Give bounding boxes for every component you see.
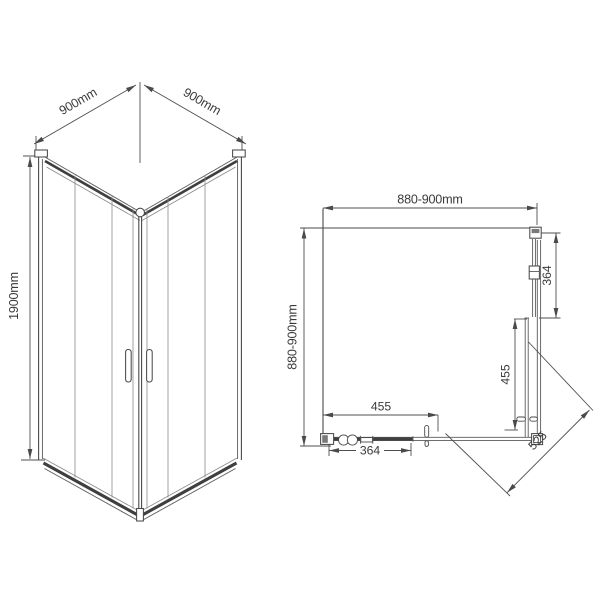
bottom-door-handle: [425, 426, 429, 438]
plan-dim-right-door: 455: [499, 319, 528, 430]
dim-label-depth: 880-900mm: [286, 304, 300, 369]
dim-label-right-fixed: 364: [540, 265, 554, 286]
dim-label-diagonal: 525: [526, 428, 550, 452]
iso-dim-width-right: 900mm: [144, 85, 246, 152]
right-wall-profile-cap: [233, 150, 246, 157]
iso-view: 900mm 900mm 1900mm: [7, 82, 246, 521]
plan-dim-bottom-door: 455: [323, 400, 438, 432]
dim-label-bottom-door: 455: [371, 400, 392, 414]
iso-structure: [35, 150, 245, 521]
plan-dim-right-fixed: 364: [539, 233, 561, 318]
right-panel-connector: [529, 266, 539, 279]
roller-wheel: [347, 435, 357, 445]
bottom-rail-left: [43, 458, 139, 521]
left-wall-profile-cap: [35, 150, 48, 157]
plan-dim-bottom-fixed: 364: [329, 443, 411, 458]
dim-label-900mm-left: 900mm: [57, 85, 100, 118]
plan-outline: [300, 209, 541, 441]
right-door-handle: [147, 350, 153, 383]
iso-dim-height: 1900mm: [7, 156, 45, 460]
extension-line: [446, 434, 511, 497]
bottom-corner-post: [137, 509, 144, 522]
iso-dim-width-left: 900mm: [34, 82, 140, 163]
plan-right-side: [517, 227, 543, 444]
bottom-rail-right: [141, 458, 237, 521]
top-rail-right: [142, 157, 238, 221]
bottom-door-handle: [425, 441, 428, 447]
dimension-line: [507, 410, 590, 493]
plan-view: 880-900mm 880-900mm 364 455 455: [286, 193, 594, 497]
plan-dim-depth: 880-900mm: [286, 229, 332, 447]
top-rail-left: [44, 157, 140, 221]
drawing-svg: 900mm 900mm 1900mm: [0, 0, 600, 600]
corner-connector: [136, 208, 145, 217]
extension-line: [529, 342, 594, 411]
right-door-handle: [530, 417, 538, 421]
top-right-wall-bracket-core: [532, 229, 540, 233]
technical-drawing: 900mm 900mm 1900mm: [0, 0, 600, 600]
plan-dim-width: 880-900mm: [323, 193, 537, 226]
dim-label-right-door: 455: [499, 364, 513, 385]
glass-panel-edges: [75, 176, 205, 509]
dim-label-900mm-right: 900mm: [181, 85, 224, 118]
left-door-handle: [126, 350, 132, 383]
dim-label-width: 880-900mm: [397, 193, 462, 207]
dim-label-1900mm: 1900mm: [7, 272, 21, 320]
right-door-handle: [517, 417, 526, 421]
bottom-left-wall-bracket-core: [322, 435, 328, 443]
dim-label-bottom-fixed: 364: [360, 444, 381, 458]
roller-carriage: [361, 438, 373, 442]
